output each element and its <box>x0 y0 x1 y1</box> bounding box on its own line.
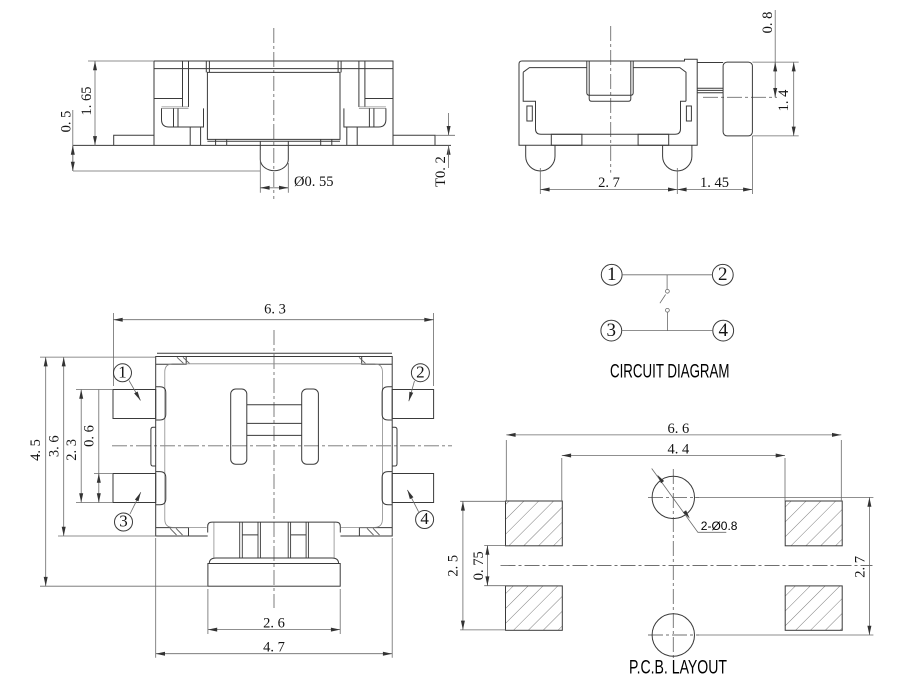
svg-text:2. 6: 2. 6 <box>263 615 285 631</box>
svg-text:0. 6: 0. 6 <box>81 425 97 447</box>
svg-text:T0. 2: T0. 2 <box>433 156 449 187</box>
svg-text:Ø0. 55: Ø0. 55 <box>294 174 333 190</box>
svg-text:3: 3 <box>607 320 617 341</box>
svg-text:0. 75: 0. 75 <box>471 551 487 580</box>
svg-text:4. 7: 4. 7 <box>263 639 285 655</box>
svg-text:6. 6: 6. 6 <box>668 421 690 437</box>
svg-text:0. 8: 0. 8 <box>760 12 776 34</box>
svg-text:3. 6: 3. 6 <box>46 435 62 457</box>
svg-text:1: 1 <box>607 264 617 285</box>
svg-text:1. 4: 1. 4 <box>776 89 792 112</box>
svg-text:1: 1 <box>118 363 127 382</box>
svg-text:2: 2 <box>416 362 425 381</box>
svg-text:4: 4 <box>718 320 728 341</box>
svg-text:2. 5: 2. 5 <box>445 555 461 577</box>
svg-text:4. 4: 4. 4 <box>668 442 691 458</box>
svg-text:2: 2 <box>718 264 728 285</box>
svg-text:CIRCUIT DIAGRAM: CIRCUIT DIAGRAM <box>610 361 730 383</box>
svg-text:0. 5: 0. 5 <box>58 111 74 133</box>
svg-text:4. 5: 4. 5 <box>28 439 44 461</box>
svg-text:1. 45: 1. 45 <box>700 175 729 191</box>
svg-text:2. 7: 2. 7 <box>853 556 869 578</box>
svg-text:1. 65: 1. 65 <box>79 87 95 116</box>
svg-text:2. 7: 2. 7 <box>598 175 620 191</box>
svg-text:4: 4 <box>420 509 429 528</box>
svg-text:2-Ø0.8: 2-Ø0.8 <box>701 519 738 533</box>
svg-text:3: 3 <box>119 512 128 531</box>
svg-text:P.C.B. LAYOUT: P.C.B. LAYOUT <box>629 657 727 679</box>
svg-text:6. 3: 6. 3 <box>264 302 286 318</box>
svg-text:2. 3: 2. 3 <box>64 439 80 461</box>
